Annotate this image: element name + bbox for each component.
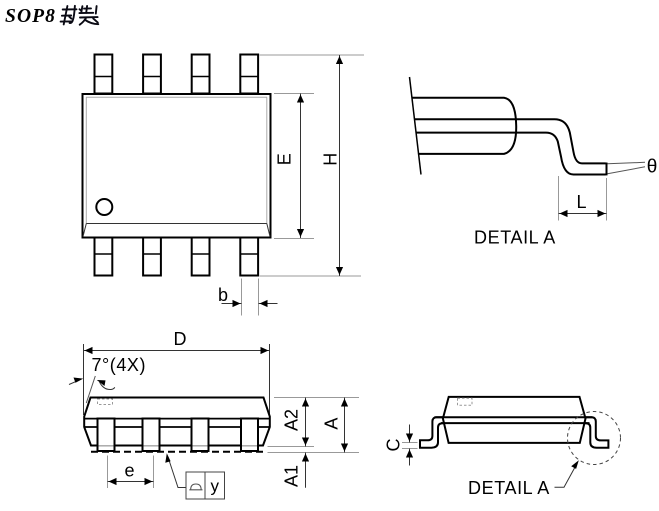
svg-text:b: b (218, 285, 228, 305)
svg-text:SOP8: SOP8 (5, 6, 56, 27)
svg-text:e: e (124, 461, 134, 481)
svg-text:H: H (320, 153, 340, 166)
svg-text:A: A (321, 418, 341, 430)
svg-text:A2: A2 (282, 409, 302, 431)
svg-text:7°(4X): 7°(4X) (92, 355, 147, 375)
svg-text:y: y (210, 476, 219, 495)
svg-text:C: C (384, 439, 404, 452)
svg-text:DETAIL A: DETAIL A (468, 478, 550, 498)
svg-text:L: L (576, 192, 586, 212)
svg-text:DETAIL A: DETAIL A (474, 228, 556, 248)
svg-text:A1: A1 (282, 465, 302, 487)
svg-text:D: D (174, 329, 187, 349)
svg-text:E: E (275, 153, 295, 165)
svg-text:θ: θ (647, 157, 658, 178)
